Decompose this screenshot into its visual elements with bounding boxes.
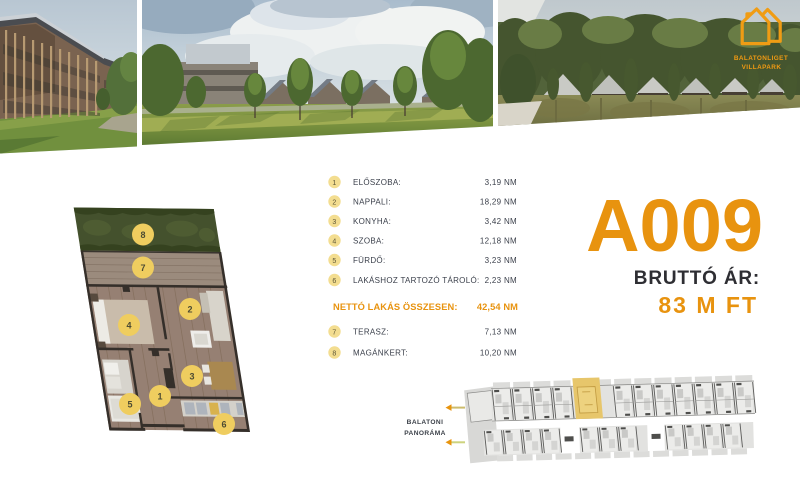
svg-text:VILLAPARK: VILLAPARK [742, 64, 782, 71]
svg-text:NAPPALI:: NAPPALI: [353, 197, 391, 206]
svg-text:2: 2 [187, 305, 192, 315]
svg-text:3: 3 [189, 372, 194, 382]
svg-text:1: 1 [332, 180, 336, 187]
svg-text:12,18 NM: 12,18 NM [480, 236, 517, 245]
svg-text:8: 8 [332, 350, 336, 357]
svg-text:4: 4 [126, 321, 131, 331]
svg-text:5: 5 [127, 400, 132, 410]
svg-text:10,20 NM: 10,20 NM [480, 348, 517, 357]
svg-text:2,23 NM: 2,23 NM [485, 276, 517, 285]
svg-text:3,42 NM: 3,42 NM [485, 217, 517, 226]
svg-text:7,13 NM: 7,13 NM [485, 327, 517, 336]
svg-text:BRUTTÓ ÁR:: BRUTTÓ ÁR: [634, 267, 760, 289]
svg-text:NETTÓ LAKÁS ÖSSZESEN:: NETTÓ LAKÁS ÖSSZESEN: [333, 301, 458, 312]
svg-text:7: 7 [332, 329, 336, 336]
svg-text:BALATONI: BALATONI [407, 419, 444, 426]
svg-text:6: 6 [332, 278, 336, 285]
svg-text:LAKÁSHOZ TARTOZÓ TÁROLÓ:: LAKÁSHOZ TARTOZÓ TÁROLÓ: [353, 276, 480, 285]
svg-text:4: 4 [332, 238, 336, 245]
svg-text:3: 3 [332, 219, 336, 226]
svg-text:3,19 NM: 3,19 NM [485, 178, 517, 187]
svg-text:KONYHA:: KONYHA: [353, 217, 391, 226]
svg-text:5: 5 [332, 258, 336, 265]
svg-text:18,29 NM: 18,29 NM [480, 197, 517, 206]
svg-text:TERASZ:: TERASZ: [353, 327, 389, 336]
svg-text:7: 7 [140, 263, 145, 273]
svg-text:2: 2 [332, 199, 336, 206]
svg-text:42,54 NM: 42,54 NM [477, 302, 518, 312]
svg-text:SZOBA:: SZOBA: [353, 236, 384, 245]
svg-text:BALATONLIGET: BALATONLIGET [734, 55, 788, 62]
svg-text:ELŐSZOBA:: ELŐSZOBA: [353, 178, 401, 187]
svg-text:PANORÁMA: PANORÁMA [404, 428, 446, 437]
svg-text:1: 1 [157, 392, 162, 402]
svg-text:6: 6 [221, 420, 226, 430]
svg-text:3,23 NM: 3,23 NM [485, 256, 517, 265]
svg-text:FÜRDŐ:: FÜRDŐ: [353, 256, 385, 265]
svg-text:A009: A009 [586, 184, 763, 267]
svg-text:MAGÁNKERT:: MAGÁNKERT: [353, 348, 408, 357]
svg-text:83 M FT: 83 M FT [658, 292, 758, 318]
svg-text:8: 8 [140, 230, 145, 240]
